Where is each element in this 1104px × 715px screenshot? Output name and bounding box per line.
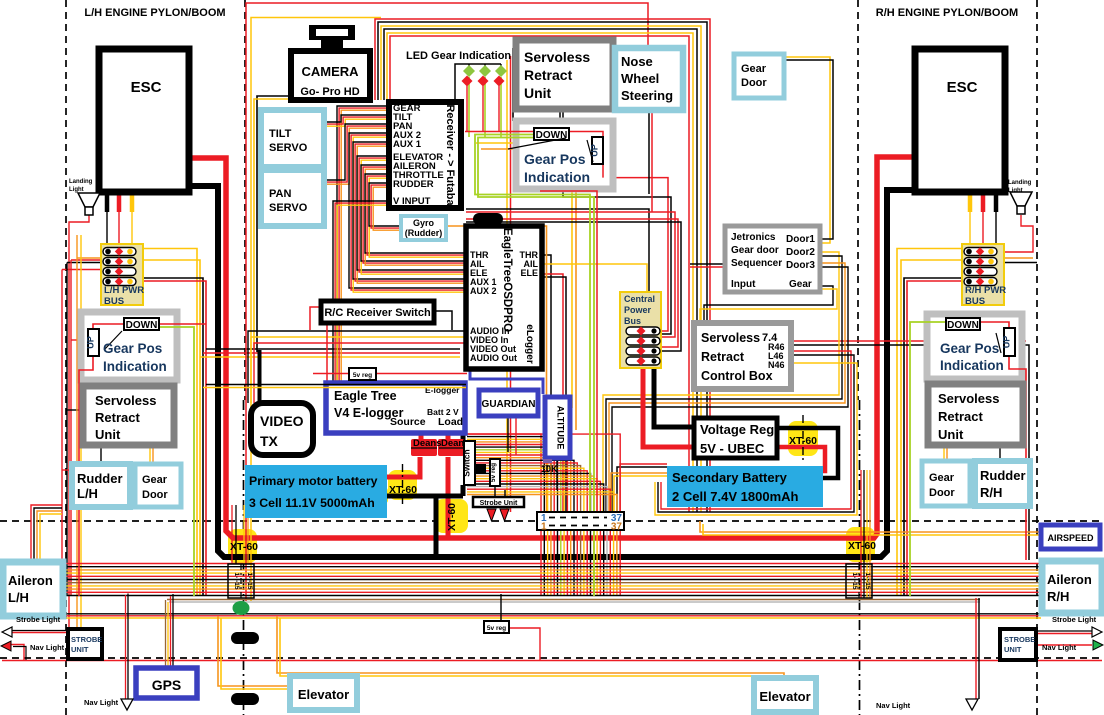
svg-text:Gyro: Gyro	[413, 218, 435, 228]
svg-text:XT-60: XT-60	[389, 484, 417, 496]
svg-text:Unit: Unit	[95, 427, 121, 442]
svg-text:Input: Input	[731, 279, 756, 290]
svg-text:Indication: Indication	[103, 359, 167, 374]
svg-text:DOWN: DOWN	[126, 320, 158, 331]
svg-text:Source: Source	[390, 416, 426, 428]
svg-text:Nav Light: Nav Light	[30, 643, 65, 652]
svg-text:E-logger: E-logger	[425, 385, 460, 395]
svg-text:Door2: Door2	[786, 247, 815, 258]
svg-text:PAN: PAN	[269, 188, 291, 200]
svg-text:Rudder: Rudder	[980, 468, 1026, 483]
svg-text:Central: Central	[624, 294, 655, 304]
svg-text:Gear: Gear	[789, 279, 812, 290]
svg-text:Jetronics: Jetronics	[731, 232, 776, 243]
svg-text:R/H PWR: R/H PWR	[965, 285, 1006, 296]
svg-text:SERVO: SERVO	[269, 142, 308, 154]
svg-text:L/H ENGINE PYLON/BOOM: L/H ENGINE PYLON/BOOM	[84, 7, 225, 19]
svg-text:Gear: Gear	[142, 474, 168, 486]
svg-text:V INPUT: V INPUT	[393, 196, 431, 207]
svg-text:Elevator: Elevator	[298, 687, 349, 702]
svg-text:Gear: Gear	[741, 63, 767, 75]
svg-text:Door: Door	[142, 489, 168, 501]
svg-text:Bus: Bus	[624, 316, 641, 326]
svg-text:XT-60: XT-60	[848, 540, 876, 552]
svg-text:1: 1	[541, 522, 547, 533]
svg-text:DOWN: DOWN	[947, 320, 979, 331]
svg-text:Wheel: Wheel	[621, 71, 659, 86]
svg-text:Servoless: Servoless	[524, 49, 590, 65]
svg-text:Deans: Deans	[413, 438, 442, 449]
svg-text:Go- Pro HD: Go- Pro HD	[300, 86, 359, 98]
svg-text:Retract: Retract	[95, 410, 140, 425]
svg-text:XT-60: XT-60	[446, 503, 458, 531]
svg-text:Strobe Light: Strobe Light	[16, 615, 61, 624]
svg-text:Servoless: Servoless	[95, 393, 156, 408]
svg-text:Gear: Gear	[929, 472, 955, 484]
svg-text:Nav Light: Nav Light	[876, 701, 911, 710]
svg-text:Secondary Battery: Secondary Battery	[672, 470, 788, 485]
svg-text:Power: Power	[624, 305, 652, 315]
svg-text:5v reg: 5v reg	[353, 372, 372, 379]
svg-text:Unit: Unit	[938, 427, 964, 442]
svg-text:R/H: R/H	[980, 485, 1002, 500]
svg-text:(Rudder): (Rudder)	[405, 228, 443, 238]
svg-text:Load: Load	[438, 416, 463, 428]
svg-text:ESC: ESC	[131, 79, 162, 96]
svg-text:Gear door: Gear door	[731, 245, 779, 256]
svg-text:1- -15: 1- -15	[851, 573, 858, 590]
svg-text:5V - UBEC: 5V - UBEC	[700, 441, 765, 456]
svg-text:XT-60: XT-60	[230, 541, 258, 553]
svg-text:Gear Pos: Gear Pos	[103, 341, 162, 356]
svg-text:Nose: Nose	[621, 54, 653, 69]
svg-text:BUS: BUS	[104, 296, 124, 307]
svg-text:CAMERA: CAMERA	[301, 64, 359, 79]
svg-text:Nav Light: Nav Light	[84, 698, 119, 707]
svg-text:TX: TX	[260, 433, 279, 449]
svg-text:3 Cell 11.1V 5000mAh: 3 Cell 11.1V 5000mAh	[249, 496, 375, 510]
svg-text:ALTITUDE: ALTITUDE	[556, 406, 566, 450]
svg-text:Door: Door	[741, 77, 767, 89]
svg-text:GUARDIAN: GUARDIAN	[482, 399, 536, 410]
svg-text:ESC: ESC	[947, 79, 978, 96]
svg-text:AUX 1: AUX 1	[393, 139, 422, 150]
svg-text:Light: Light	[69, 187, 84, 193]
svg-text:LED Gear Indication: LED Gear Indication	[406, 50, 511, 62]
svg-text:UNIT: UNIT	[1004, 645, 1022, 654]
svg-text:eLogger: eLogger	[524, 324, 535, 364]
svg-text:R/C Receiver Switch: R/C Receiver Switch	[324, 307, 431, 319]
svg-text:TILT: TILT	[269, 128, 292, 140]
svg-text:1- -15: 1- -15	[246, 573, 253, 590]
svg-text:STROBE: STROBE	[1004, 635, 1035, 644]
svg-text:AUDIO Out: AUDIO Out	[470, 353, 517, 363]
svg-text:Sequencer: Sequencer	[731, 258, 782, 269]
svg-text:Gear Pos: Gear Pos	[940, 341, 999, 356]
svg-text:GPS: GPS	[152, 677, 182, 693]
svg-text:R/H ENGINE PYLON/BOOM: R/H ENGINE PYLON/BOOM	[876, 7, 1018, 19]
svg-text:Primary motor battery: Primary motor battery	[249, 474, 378, 488]
svg-text:1- -15: 1- -15	[233, 573, 240, 590]
svg-text:Indication: Indication	[940, 358, 1004, 373]
svg-text:Receiver - > Futaba: Receiver - > Futaba	[444, 104, 456, 206]
svg-text:Retract: Retract	[938, 409, 983, 424]
svg-text:DOWN: DOWN	[536, 130, 568, 141]
svg-text:Voltage Reg: Voltage Reg	[700, 422, 774, 437]
svg-text:2 Cell 7.4V 1800mAh: 2 Cell 7.4V 1800mAh	[672, 489, 799, 504]
svg-text:Switch: Switch	[462, 449, 472, 476]
svg-text:Control Box: Control Box	[701, 369, 773, 383]
svg-text:UNIT: UNIT	[71, 645, 89, 654]
svg-text:5v reg: 5v reg	[490, 463, 497, 482]
svg-text:Retract: Retract	[701, 350, 745, 364]
svg-text:Nav Light: Nav Light	[1042, 643, 1077, 652]
svg-text:UP: UP	[1002, 336, 1012, 349]
svg-text:STROBE: STROBE	[71, 635, 102, 644]
svg-text:Elevator: Elevator	[759, 689, 810, 704]
svg-text:Door1: Door1	[786, 234, 815, 245]
svg-text:Gear Pos: Gear Pos	[524, 151, 586, 167]
svg-text:RUDDER: RUDDER	[393, 179, 434, 190]
svg-text:5v reg: 5v reg	[487, 625, 506, 632]
svg-text:Strobe Light: Strobe Light	[1052, 615, 1097, 624]
svg-text:Landing: Landing	[1008, 180, 1032, 186]
svg-text:UP: UP	[86, 336, 96, 349]
svg-text:EagleTreeOSDPRO: EagleTreeOSDPRO	[501, 228, 513, 332]
svg-text:Eagle Tree: Eagle Tree	[334, 389, 397, 403]
svg-text:N46: N46	[768, 360, 785, 370]
svg-text:37: 37	[611, 522, 623, 533]
svg-text:AIRSPEED: AIRSPEED	[1047, 533, 1094, 543]
svg-text:R/H: R/H	[1047, 589, 1069, 604]
svg-text:Retract: Retract	[524, 67, 573, 83]
svg-text:Steering: Steering	[621, 88, 673, 103]
svg-text:Rudder: Rudder	[77, 471, 123, 486]
svg-text:XT-60: XT-60	[789, 435, 817, 447]
svg-text:BUS: BUS	[965, 296, 985, 307]
svg-text:Aileron: Aileron	[1047, 572, 1092, 587]
svg-text:SERVO: SERVO	[269, 202, 308, 214]
svg-text:L/H: L/H	[8, 590, 29, 605]
svg-text:AUX 2: AUX 2	[470, 286, 497, 296]
svg-text:10K: 10K	[541, 464, 558, 474]
svg-text:Servoless: Servoless	[701, 331, 760, 345]
svg-text:L/H PWR: L/H PWR	[104, 285, 144, 296]
svg-text:L/H: L/H	[77, 486, 98, 501]
svg-text:VIDEO: VIDEO	[260, 413, 304, 429]
svg-text:Aileron: Aileron	[8, 573, 53, 588]
svg-text:1- -15: 1- -15	[864, 573, 871, 590]
svg-text:Servoless: Servoless	[938, 391, 999, 406]
svg-text:Door: Door	[929, 487, 955, 499]
svg-text:Indication: Indication	[524, 169, 590, 185]
svg-text:Door3: Door3	[786, 260, 815, 271]
svg-text:Unit: Unit	[524, 85, 552, 101]
svg-text:ELE: ELE	[520, 268, 538, 278]
svg-text:Landing: Landing	[69, 179, 93, 185]
svg-text:Strobe Unit: Strobe Unit	[480, 500, 518, 507]
